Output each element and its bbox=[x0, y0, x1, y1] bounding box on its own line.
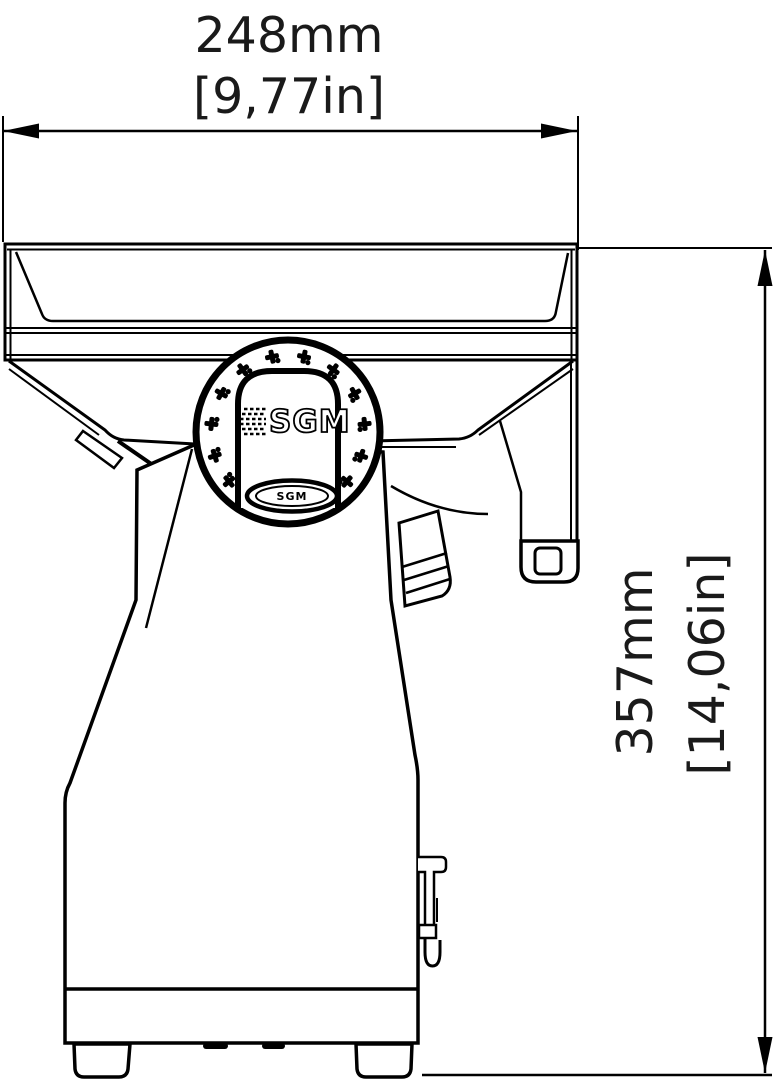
height-label-mm: 357mm bbox=[607, 568, 664, 757]
sgm-logo-text: SGM bbox=[269, 404, 351, 440]
arrowhead-left bbox=[3, 124, 39, 139]
fixture-dimension-drawing: 248mm [9,77in] 357mm [14,06in] bbox=[0, 0, 777, 1080]
yoke-hub: SGM SGM bbox=[196, 340, 380, 524]
foot-right bbox=[356, 1044, 412, 1077]
front-arm-outline bbox=[65, 445, 418, 1043]
clamp-collar bbox=[419, 925, 436, 938]
shell-right-slant bbox=[370, 361, 573, 441]
hub-badge-text: SGM bbox=[277, 490, 308, 503]
front-arm-base bbox=[65, 445, 418, 1077]
rear-yoke-arm bbox=[391, 361, 578, 606]
technical-drawing-page: 248mm [9,77in] 357mm [14,06in] bbox=[0, 0, 777, 1080]
shell-left-slant-inner bbox=[9, 369, 99, 435]
width-label-inches: [9,77in] bbox=[193, 68, 385, 125]
width-label-mm: 248mm bbox=[195, 7, 384, 64]
height-label-inches: [14,06in] bbox=[679, 552, 736, 775]
arrowhead-up bbox=[758, 250, 773, 286]
shell-right-slant-inner bbox=[479, 369, 573, 435]
clamp-hook-top bbox=[418, 857, 446, 930]
foot-left bbox=[74, 1044, 130, 1077]
rear-arm-inner-edge bbox=[500, 421, 521, 541]
clamp-handle bbox=[418, 857, 446, 966]
dimension-width bbox=[3, 116, 578, 250]
base-bump-right bbox=[262, 1043, 285, 1049]
arrowhead-down bbox=[758, 1037, 773, 1073]
base-bump-left bbox=[203, 1043, 228, 1049]
arrowhead-right bbox=[541, 124, 577, 139]
yoke-underside-curve bbox=[391, 486, 488, 514]
clamp-j-hook bbox=[425, 938, 440, 966]
